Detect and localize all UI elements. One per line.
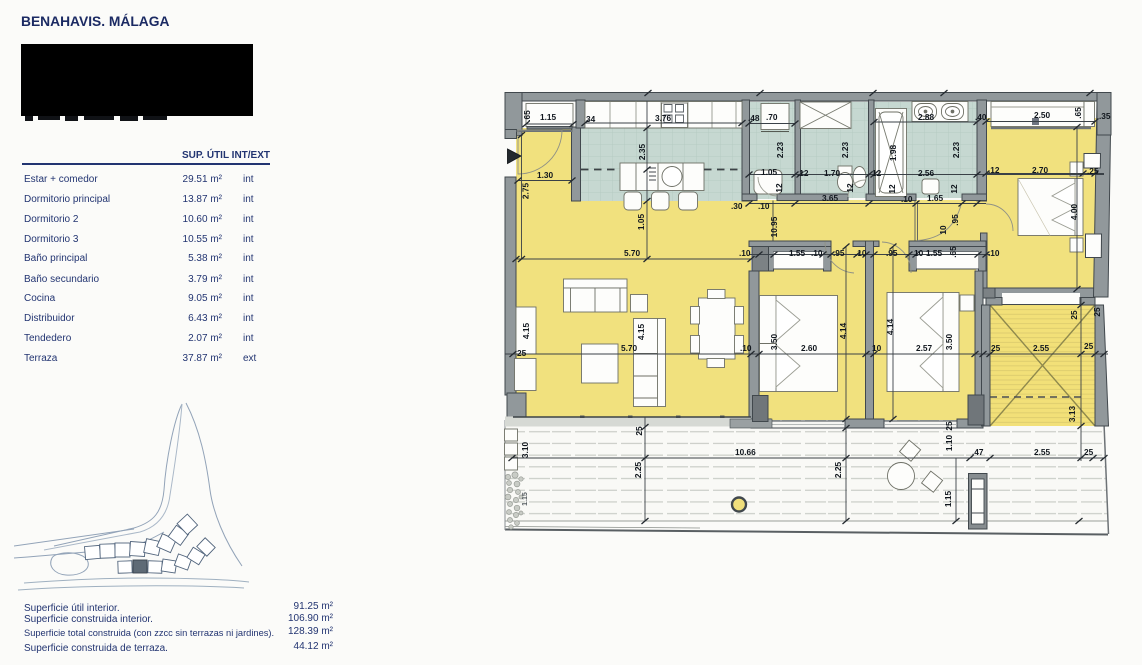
svg-text:12: 12 (887, 184, 897, 194)
svg-text:.12: .12 (797, 168, 809, 178)
svg-text:10: 10 (914, 248, 924, 258)
svg-text:10.66: 10.66 (735, 447, 756, 457)
svg-text:.47: .47 (972, 447, 984, 457)
svg-text:2.23: 2.23 (951, 142, 961, 159)
svg-text:25: 25 (944, 421, 954, 431)
svg-text:12: 12 (774, 183, 784, 193)
svg-text:3.13: 3.13 (1067, 406, 1077, 423)
svg-text:3.76: 3.76 (655, 113, 672, 123)
svg-text:.10: .10 (901, 194, 913, 204)
svg-text:4.00: 4.00 (1069, 204, 1079, 221)
svg-text:1.10: 1.10 (944, 435, 954, 452)
svg-text:2.70: 2.70 (1032, 165, 1049, 175)
svg-text:1.55: 1.55 (789, 248, 806, 258)
svg-text:10.95: 10.95 (769, 216, 779, 237)
svg-text:3.50: 3.50 (944, 334, 954, 351)
svg-text:2.55: 2.55 (1033, 343, 1050, 353)
svg-text:1.15: 1.15 (522, 492, 529, 506)
svg-text:3.10: 3.10 (520, 442, 530, 459)
svg-text:.10: .10 (811, 248, 823, 258)
svg-text:.70: .70 (766, 112, 778, 122)
svg-text:2.56: 2.56 (918, 168, 935, 178)
svg-text:1.55: 1.55 (926, 248, 943, 258)
svg-text:.10: .10 (739, 248, 751, 258)
svg-text:25: 25 (1069, 310, 1079, 320)
svg-text:2.55: 2.55 (1034, 447, 1051, 457)
svg-text:.95: .95 (833, 248, 845, 258)
svg-text:.95: .95 (886, 248, 898, 258)
svg-text:.10: .10 (988, 248, 1000, 258)
svg-text:.40: .40 (975, 112, 987, 122)
svg-text:.48: .48 (748, 113, 760, 123)
svg-text:2.57: 2.57 (916, 343, 933, 353)
svg-text:1.70: 1.70 (824, 168, 841, 178)
svg-text:12: 12 (872, 168, 882, 178)
svg-text:2.75: 2.75 (521, 183, 531, 200)
svg-text:4.15: 4.15 (521, 323, 531, 340)
svg-text:3.65: 3.65 (822, 193, 839, 203)
svg-text:.10: .10 (855, 248, 867, 258)
svg-text:25: 25 (1092, 307, 1102, 317)
svg-text:3.50: 3.50 (769, 334, 779, 351)
svg-text:1.05: 1.05 (761, 167, 778, 177)
svg-text:.95: .95 (950, 214, 960, 226)
svg-text:2.35: 2.35 (637, 144, 647, 161)
svg-text:25: 25 (1084, 341, 1094, 351)
svg-text:2.60: 2.60 (801, 343, 818, 353)
svg-text:25: 25 (634, 426, 644, 436)
svg-text:.25: .25 (1087, 166, 1099, 176)
svg-text:.30: .30 (731, 201, 743, 211)
svg-text:25: 25 (517, 348, 527, 358)
svg-text:25: 25 (1084, 447, 1094, 457)
svg-text:4.14: 4.14 (885, 319, 895, 336)
svg-text:2.23: 2.23 (840, 142, 850, 159)
svg-text:2.50: 2.50 (1034, 110, 1051, 120)
svg-text:5.70: 5.70 (621, 343, 638, 353)
svg-text:2.88: 2.88 (918, 112, 935, 122)
svg-text:1.65: 1.65 (927, 193, 944, 203)
svg-text:.65: .65 (1073, 107, 1083, 119)
svg-text:12: 12 (949, 184, 959, 194)
svg-text:.65: .65 (522, 110, 532, 122)
svg-text:1.15: 1.15 (540, 112, 557, 122)
svg-text:.12: .12 (988, 165, 1000, 175)
svg-text:10: 10 (938, 225, 948, 235)
svg-text:.10: .10 (758, 201, 770, 211)
svg-text:.35: .35 (1099, 111, 1111, 121)
svg-text:2.23: 2.23 (775, 142, 785, 159)
svg-text:4.15: 4.15 (636, 324, 646, 341)
svg-text:34: 34 (586, 114, 596, 124)
svg-text:2.25: 2.25 (633, 462, 643, 479)
svg-text:1.98: 1.98 (888, 145, 898, 162)
svg-text:1.05: 1.05 (636, 214, 646, 231)
svg-text:1.15: 1.15 (943, 491, 953, 508)
svg-text:2.25: 2.25 (833, 462, 843, 479)
svg-text:.10: .10 (740, 343, 752, 353)
svg-text:1.30: 1.30 (537, 170, 554, 180)
svg-text:.65: .65 (948, 246, 958, 258)
svg-text:5.70: 5.70 (624, 248, 641, 258)
svg-text:12: 12 (845, 183, 855, 193)
svg-text:10: 10 (872, 343, 882, 353)
svg-text:4.14: 4.14 (838, 323, 848, 340)
svg-text:25: 25 (991, 343, 1001, 353)
